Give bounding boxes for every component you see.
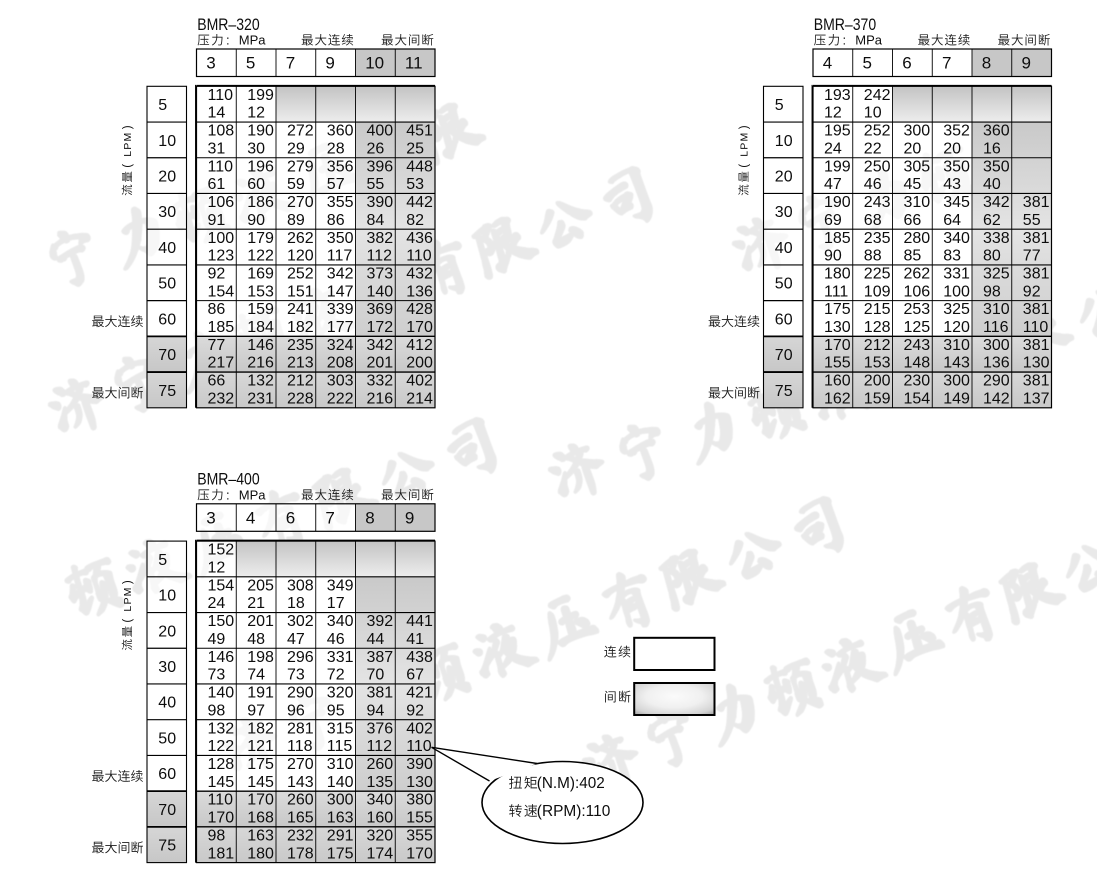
svg-text:182: 182 xyxy=(247,720,274,737)
svg-text:59: 59 xyxy=(287,176,305,193)
svg-text:96: 96 xyxy=(287,702,305,719)
svg-text:390: 390 xyxy=(406,756,433,773)
svg-text:): ) xyxy=(738,125,750,129)
svg-text:349: 349 xyxy=(327,577,354,594)
svg-text:222: 222 xyxy=(327,391,354,408)
svg-text:300: 300 xyxy=(327,792,354,809)
svg-text:350: 350 xyxy=(943,158,970,175)
svg-text:117: 117 xyxy=(327,248,353,265)
svg-text:163: 163 xyxy=(327,810,354,827)
svg-text:159: 159 xyxy=(247,301,274,318)
svg-text:92: 92 xyxy=(208,266,226,283)
svg-text:70: 70 xyxy=(158,347,176,364)
svg-text:280: 280 xyxy=(904,230,931,247)
svg-text:70: 70 xyxy=(367,667,385,684)
svg-text:451: 451 xyxy=(406,123,433,140)
svg-text:345: 345 xyxy=(943,194,970,211)
svg-text:84: 84 xyxy=(367,212,385,229)
svg-text:342: 342 xyxy=(367,337,394,354)
svg-text:46: 46 xyxy=(327,631,345,648)
svg-text:198: 198 xyxy=(247,649,274,666)
svg-text:381: 381 xyxy=(1023,337,1050,354)
svg-text:155: 155 xyxy=(824,355,851,372)
svg-text:110: 110 xyxy=(1023,319,1049,336)
svg-text:201: 201 xyxy=(247,613,274,630)
svg-text:8: 8 xyxy=(365,508,374,527)
svg-text:153: 153 xyxy=(864,355,891,372)
svg-text:199: 199 xyxy=(824,158,851,175)
svg-text:74: 74 xyxy=(247,667,265,684)
svg-text:182: 182 xyxy=(287,319,314,336)
svg-text:116: 116 xyxy=(983,319,1009,336)
svg-text:217: 217 xyxy=(208,355,235,372)
svg-text:185: 185 xyxy=(208,319,235,336)
svg-text:428: 428 xyxy=(406,301,433,318)
svg-text:98: 98 xyxy=(983,283,1001,300)
svg-text:66: 66 xyxy=(904,212,922,229)
svg-text:9: 9 xyxy=(405,508,414,527)
svg-text:11: 11 xyxy=(405,54,423,73)
svg-text:53: 53 xyxy=(406,176,424,193)
svg-text:77: 77 xyxy=(208,337,226,354)
svg-text:92: 92 xyxy=(1023,283,1041,300)
svg-text:106: 106 xyxy=(208,194,235,211)
svg-text:60: 60 xyxy=(247,176,265,193)
svg-text:137: 137 xyxy=(1023,391,1050,408)
svg-text:262: 262 xyxy=(904,266,931,283)
svg-text:20: 20 xyxy=(775,169,793,186)
svg-text:214: 214 xyxy=(406,391,433,408)
svg-text:5: 5 xyxy=(775,97,784,114)
svg-text:7: 7 xyxy=(325,508,334,527)
svg-text:80: 80 xyxy=(983,248,1001,265)
svg-text:5: 5 xyxy=(246,54,255,73)
svg-text:143: 143 xyxy=(287,774,314,791)
svg-text:91: 91 xyxy=(208,212,226,229)
svg-text:208: 208 xyxy=(327,355,354,372)
svg-text:260: 260 xyxy=(287,792,314,809)
svg-text:75: 75 xyxy=(158,838,176,855)
svg-text:175: 175 xyxy=(327,845,354,862)
svg-text:3: 3 xyxy=(206,54,215,73)
svg-text:381: 381 xyxy=(367,685,394,702)
svg-text:12: 12 xyxy=(208,560,226,577)
svg-text:66: 66 xyxy=(208,373,226,390)
svg-text:122: 122 xyxy=(247,248,274,265)
svg-text:67: 67 xyxy=(406,667,424,684)
svg-text:25: 25 xyxy=(406,140,424,157)
svg-text:303: 303 xyxy=(327,373,354,390)
svg-text:MPa: MPa xyxy=(855,33,883,48)
svg-text:10: 10 xyxy=(158,588,176,605)
svg-text:29: 29 xyxy=(287,140,305,157)
svg-text:290: 290 xyxy=(287,685,314,702)
svg-text:130: 130 xyxy=(824,319,851,336)
svg-text:128: 128 xyxy=(208,756,235,773)
svg-text:412: 412 xyxy=(406,337,433,354)
svg-text:73: 73 xyxy=(208,667,226,684)
svg-text:55: 55 xyxy=(1023,212,1041,229)
svg-text:110: 110 xyxy=(406,248,432,265)
svg-text:111: 111 xyxy=(824,283,848,300)
svg-text:154: 154 xyxy=(904,391,931,408)
svg-text:235: 235 xyxy=(287,337,314,354)
svg-text:98: 98 xyxy=(208,828,226,845)
svg-text:272: 272 xyxy=(287,123,314,140)
svg-text:115: 115 xyxy=(327,738,353,755)
svg-text:57: 57 xyxy=(327,176,345,193)
svg-text:170: 170 xyxy=(406,319,433,336)
svg-text:331: 331 xyxy=(943,266,970,283)
svg-text:30: 30 xyxy=(158,659,176,676)
svg-text:147: 147 xyxy=(327,283,354,300)
svg-text:149: 149 xyxy=(943,391,970,408)
svg-text:360: 360 xyxy=(983,123,1010,140)
svg-text:438: 438 xyxy=(406,649,433,666)
svg-text:75: 75 xyxy=(775,383,793,400)
svg-text:300: 300 xyxy=(904,123,931,140)
svg-text:30: 30 xyxy=(775,204,793,221)
svg-text:90: 90 xyxy=(247,212,265,229)
svg-text::: : xyxy=(226,33,230,48)
svg-text:332: 332 xyxy=(367,373,394,390)
svg-text:64: 64 xyxy=(943,212,961,229)
svg-text:60: 60 xyxy=(158,311,176,328)
svg-text::: : xyxy=(226,487,230,502)
svg-text:145: 145 xyxy=(208,774,235,791)
svg-text:250: 250 xyxy=(864,158,891,175)
svg-text:310: 310 xyxy=(983,301,1010,318)
svg-text:150: 150 xyxy=(208,613,235,630)
svg-text:170: 170 xyxy=(824,337,851,354)
svg-text:146: 146 xyxy=(247,337,274,354)
svg-text:94: 94 xyxy=(367,702,385,719)
svg-text:128: 128 xyxy=(864,319,891,336)
svg-text:14: 14 xyxy=(208,105,226,122)
svg-text:120: 120 xyxy=(287,248,314,265)
svg-text:(: ( xyxy=(122,619,134,623)
svg-text:12: 12 xyxy=(247,105,265,122)
svg-text:140: 140 xyxy=(367,283,394,300)
svg-text:9: 9 xyxy=(1022,54,1031,73)
svg-text:180: 180 xyxy=(247,845,274,862)
svg-text:21: 21 xyxy=(247,595,265,612)
svg-text:(N.M):402: (N.M):402 xyxy=(537,775,605,792)
svg-text:50: 50 xyxy=(158,276,176,293)
svg-text:72: 72 xyxy=(327,667,345,684)
svg-text:10: 10 xyxy=(775,133,793,150)
svg-text:350: 350 xyxy=(983,158,1010,175)
svg-text:270: 270 xyxy=(287,756,314,773)
svg-text:40: 40 xyxy=(158,240,176,257)
svg-text:6: 6 xyxy=(286,508,295,527)
svg-text:402: 402 xyxy=(406,373,433,390)
svg-text:421: 421 xyxy=(406,685,433,702)
svg-text:352: 352 xyxy=(943,123,970,140)
svg-text:125: 125 xyxy=(904,319,931,336)
svg-text:100: 100 xyxy=(943,283,970,300)
svg-text:310: 310 xyxy=(943,337,970,354)
svg-text:300: 300 xyxy=(943,373,970,390)
svg-text:342: 342 xyxy=(983,194,1010,211)
svg-text:281: 281 xyxy=(287,720,314,737)
svg-text:50: 50 xyxy=(158,731,176,748)
svg-text:160: 160 xyxy=(824,373,851,390)
svg-text:40: 40 xyxy=(983,176,1001,193)
svg-text:213: 213 xyxy=(287,355,314,372)
svg-text:143: 143 xyxy=(943,355,970,372)
svg-text:381: 381 xyxy=(1023,373,1050,390)
svg-text:120: 120 xyxy=(943,319,970,336)
svg-text:132: 132 xyxy=(208,720,235,737)
svg-text:8: 8 xyxy=(982,54,991,73)
svg-text:110: 110 xyxy=(208,158,234,175)
svg-text:82: 82 xyxy=(406,212,424,229)
svg-text:110: 110 xyxy=(208,87,234,104)
svg-text:290: 290 xyxy=(983,373,1010,390)
svg-text:41: 41 xyxy=(406,631,424,648)
svg-text:381: 381 xyxy=(1023,194,1050,211)
svg-text:24: 24 xyxy=(824,140,842,157)
svg-text:160: 160 xyxy=(367,810,394,827)
svg-text:310: 310 xyxy=(904,194,931,211)
svg-text:381: 381 xyxy=(1023,266,1050,283)
svg-text:121: 121 xyxy=(247,738,274,755)
svg-text:243: 243 xyxy=(864,194,891,211)
svg-text:432: 432 xyxy=(406,266,433,283)
svg-text:241: 241 xyxy=(287,301,314,318)
svg-text:338: 338 xyxy=(983,230,1010,247)
svg-text:BMR–370: BMR–370 xyxy=(814,16,877,34)
svg-text:122: 122 xyxy=(208,738,235,755)
svg-text:136: 136 xyxy=(983,355,1010,372)
svg-text:279: 279 xyxy=(287,158,314,175)
svg-text:181: 181 xyxy=(208,845,235,862)
svg-text:45: 45 xyxy=(904,176,922,193)
svg-text:165: 165 xyxy=(287,810,314,827)
svg-text:146: 146 xyxy=(208,649,235,666)
svg-text:325: 325 xyxy=(983,266,1010,283)
svg-text:16: 16 xyxy=(983,140,1001,157)
svg-text:225: 225 xyxy=(864,266,891,283)
svg-text:174: 174 xyxy=(367,845,394,862)
svg-text:380: 380 xyxy=(406,792,433,809)
svg-text:191: 191 xyxy=(247,685,274,702)
svg-text:47: 47 xyxy=(287,631,305,648)
svg-text:142: 142 xyxy=(983,391,1010,408)
svg-text:320: 320 xyxy=(327,685,354,702)
svg-text:196: 196 xyxy=(247,158,274,175)
svg-text:9: 9 xyxy=(325,54,334,73)
svg-text:232: 232 xyxy=(287,828,314,845)
svg-text:77: 77 xyxy=(1023,248,1041,265)
svg-text:(: ( xyxy=(738,164,750,168)
svg-text:310: 310 xyxy=(327,756,354,773)
svg-text:18: 18 xyxy=(287,595,305,612)
svg-text:305: 305 xyxy=(904,158,931,175)
svg-text:10: 10 xyxy=(158,133,176,150)
svg-text:60: 60 xyxy=(775,311,793,328)
svg-text:136: 136 xyxy=(406,283,433,300)
svg-text:302: 302 xyxy=(287,613,314,630)
svg-text:190: 190 xyxy=(824,194,851,211)
svg-text:148: 148 xyxy=(904,355,931,372)
svg-text:390: 390 xyxy=(367,194,394,211)
svg-text:163: 163 xyxy=(247,828,274,845)
svg-text:112: 112 xyxy=(367,738,393,755)
svg-text:30: 30 xyxy=(158,204,176,221)
svg-text:262: 262 xyxy=(287,230,314,247)
svg-text:7: 7 xyxy=(942,54,951,73)
svg-text:315: 315 xyxy=(327,720,354,737)
svg-text:159: 159 xyxy=(864,391,891,408)
svg-text:340: 340 xyxy=(367,792,394,809)
svg-text:170: 170 xyxy=(208,810,235,827)
svg-text:154: 154 xyxy=(208,283,235,300)
svg-text:441: 441 xyxy=(406,613,433,630)
svg-text:190: 190 xyxy=(247,123,274,140)
svg-text:24: 24 xyxy=(208,595,226,612)
svg-text:135: 135 xyxy=(367,774,394,791)
svg-text:228: 228 xyxy=(287,391,314,408)
svg-text:BMR–320: BMR–320 xyxy=(197,16,260,34)
svg-text:28: 28 xyxy=(327,140,345,157)
svg-text:369: 369 xyxy=(367,301,394,318)
svg-text:61: 61 xyxy=(208,176,226,193)
svg-text:260: 260 xyxy=(367,756,394,773)
svg-text:86: 86 xyxy=(327,212,345,229)
svg-text:402: 402 xyxy=(406,720,433,737)
svg-text:291: 291 xyxy=(327,828,354,845)
svg-text:185: 185 xyxy=(824,230,851,247)
svg-text:47: 47 xyxy=(824,176,842,193)
svg-text:179: 179 xyxy=(247,230,274,247)
svg-text:193: 193 xyxy=(824,87,851,104)
svg-text:50: 50 xyxy=(775,276,793,293)
svg-text:387: 387 xyxy=(367,649,394,666)
svg-text:168: 168 xyxy=(247,810,274,827)
svg-text:212: 212 xyxy=(287,373,314,390)
svg-text:): ) xyxy=(122,125,134,129)
svg-text:60: 60 xyxy=(158,766,176,783)
svg-text:30: 30 xyxy=(247,140,265,157)
svg-text:235: 235 xyxy=(864,230,891,247)
svg-text:324: 324 xyxy=(327,337,354,354)
svg-text:320: 320 xyxy=(367,828,394,845)
svg-text:86: 86 xyxy=(208,301,226,318)
svg-text:20: 20 xyxy=(904,140,922,157)
svg-text:400: 400 xyxy=(367,123,394,140)
svg-text:140: 140 xyxy=(208,685,235,702)
svg-text:172: 172 xyxy=(367,319,394,336)
svg-text:): ) xyxy=(122,580,134,584)
svg-text:140: 140 xyxy=(327,774,354,791)
svg-text:342: 342 xyxy=(327,266,354,283)
svg-text:270: 270 xyxy=(287,194,314,211)
svg-text:300: 300 xyxy=(983,337,1010,354)
svg-text:382: 382 xyxy=(367,230,394,247)
svg-text:205: 205 xyxy=(247,577,274,594)
svg-text:20: 20 xyxy=(158,169,176,186)
svg-text:350: 350 xyxy=(327,230,354,247)
svg-text:LPM: LPM xyxy=(122,586,134,611)
svg-text:106: 106 xyxy=(904,283,931,300)
svg-text:175: 175 xyxy=(247,756,274,773)
svg-text:242: 242 xyxy=(864,87,891,104)
svg-text:252: 252 xyxy=(287,266,314,283)
svg-text:175: 175 xyxy=(824,301,851,318)
svg-text:199: 199 xyxy=(247,87,274,104)
svg-text:108: 108 xyxy=(208,123,235,140)
svg-text:340: 340 xyxy=(943,230,970,247)
svg-text:376: 376 xyxy=(367,720,394,737)
svg-text:308: 308 xyxy=(287,577,314,594)
svg-text:373: 373 xyxy=(367,266,394,283)
svg-text:360: 360 xyxy=(327,123,354,140)
svg-text::: : xyxy=(843,33,847,48)
svg-text:110: 110 xyxy=(208,792,234,809)
svg-text:20: 20 xyxy=(943,140,961,157)
svg-text:232: 232 xyxy=(208,391,235,408)
svg-text:68: 68 xyxy=(864,212,882,229)
svg-text:73: 73 xyxy=(287,667,305,684)
svg-text:70: 70 xyxy=(775,347,793,364)
svg-text:118: 118 xyxy=(287,738,313,755)
svg-text:109: 109 xyxy=(864,283,891,300)
svg-text:231: 231 xyxy=(247,391,274,408)
svg-text:70: 70 xyxy=(158,802,176,819)
svg-text:3: 3 xyxy=(206,508,215,527)
svg-text:97: 97 xyxy=(247,702,265,719)
svg-text:162: 162 xyxy=(824,391,851,408)
svg-text:230: 230 xyxy=(904,373,931,390)
svg-text:448: 448 xyxy=(406,158,433,175)
svg-text:215: 215 xyxy=(864,301,891,318)
svg-text:442: 442 xyxy=(406,194,433,211)
svg-text:22: 22 xyxy=(864,140,882,157)
svg-text:130: 130 xyxy=(406,774,433,791)
svg-text:153: 153 xyxy=(247,283,274,300)
svg-text:151: 151 xyxy=(287,283,314,300)
svg-text:331: 331 xyxy=(327,649,354,666)
svg-text:132: 132 xyxy=(247,373,274,390)
svg-text:169: 169 xyxy=(247,266,274,283)
svg-text:6: 6 xyxy=(902,54,911,73)
svg-text:5: 5 xyxy=(158,97,167,114)
svg-text:(RPM):110: (RPM):110 xyxy=(537,803,611,820)
svg-text:381: 381 xyxy=(1023,230,1050,247)
svg-text:69: 69 xyxy=(824,212,842,229)
svg-text:180: 180 xyxy=(824,266,851,283)
svg-text:75: 75 xyxy=(158,383,176,400)
svg-text:152: 152 xyxy=(208,542,235,559)
svg-text:200: 200 xyxy=(406,355,433,372)
svg-text:201: 201 xyxy=(367,355,394,372)
svg-text:195: 195 xyxy=(824,123,851,140)
svg-text:212: 212 xyxy=(864,337,891,354)
svg-text:31: 31 xyxy=(208,140,226,157)
svg-text:296: 296 xyxy=(287,649,314,666)
svg-text:43: 43 xyxy=(943,176,961,193)
svg-text:339: 339 xyxy=(327,301,354,318)
svg-text:200: 200 xyxy=(864,373,891,390)
svg-text:155: 155 xyxy=(406,810,433,827)
svg-text:(: ( xyxy=(122,164,134,168)
svg-text:252: 252 xyxy=(864,123,891,140)
svg-text:85: 85 xyxy=(904,248,922,265)
svg-text:110: 110 xyxy=(406,738,432,755)
svg-text:10: 10 xyxy=(864,105,882,122)
